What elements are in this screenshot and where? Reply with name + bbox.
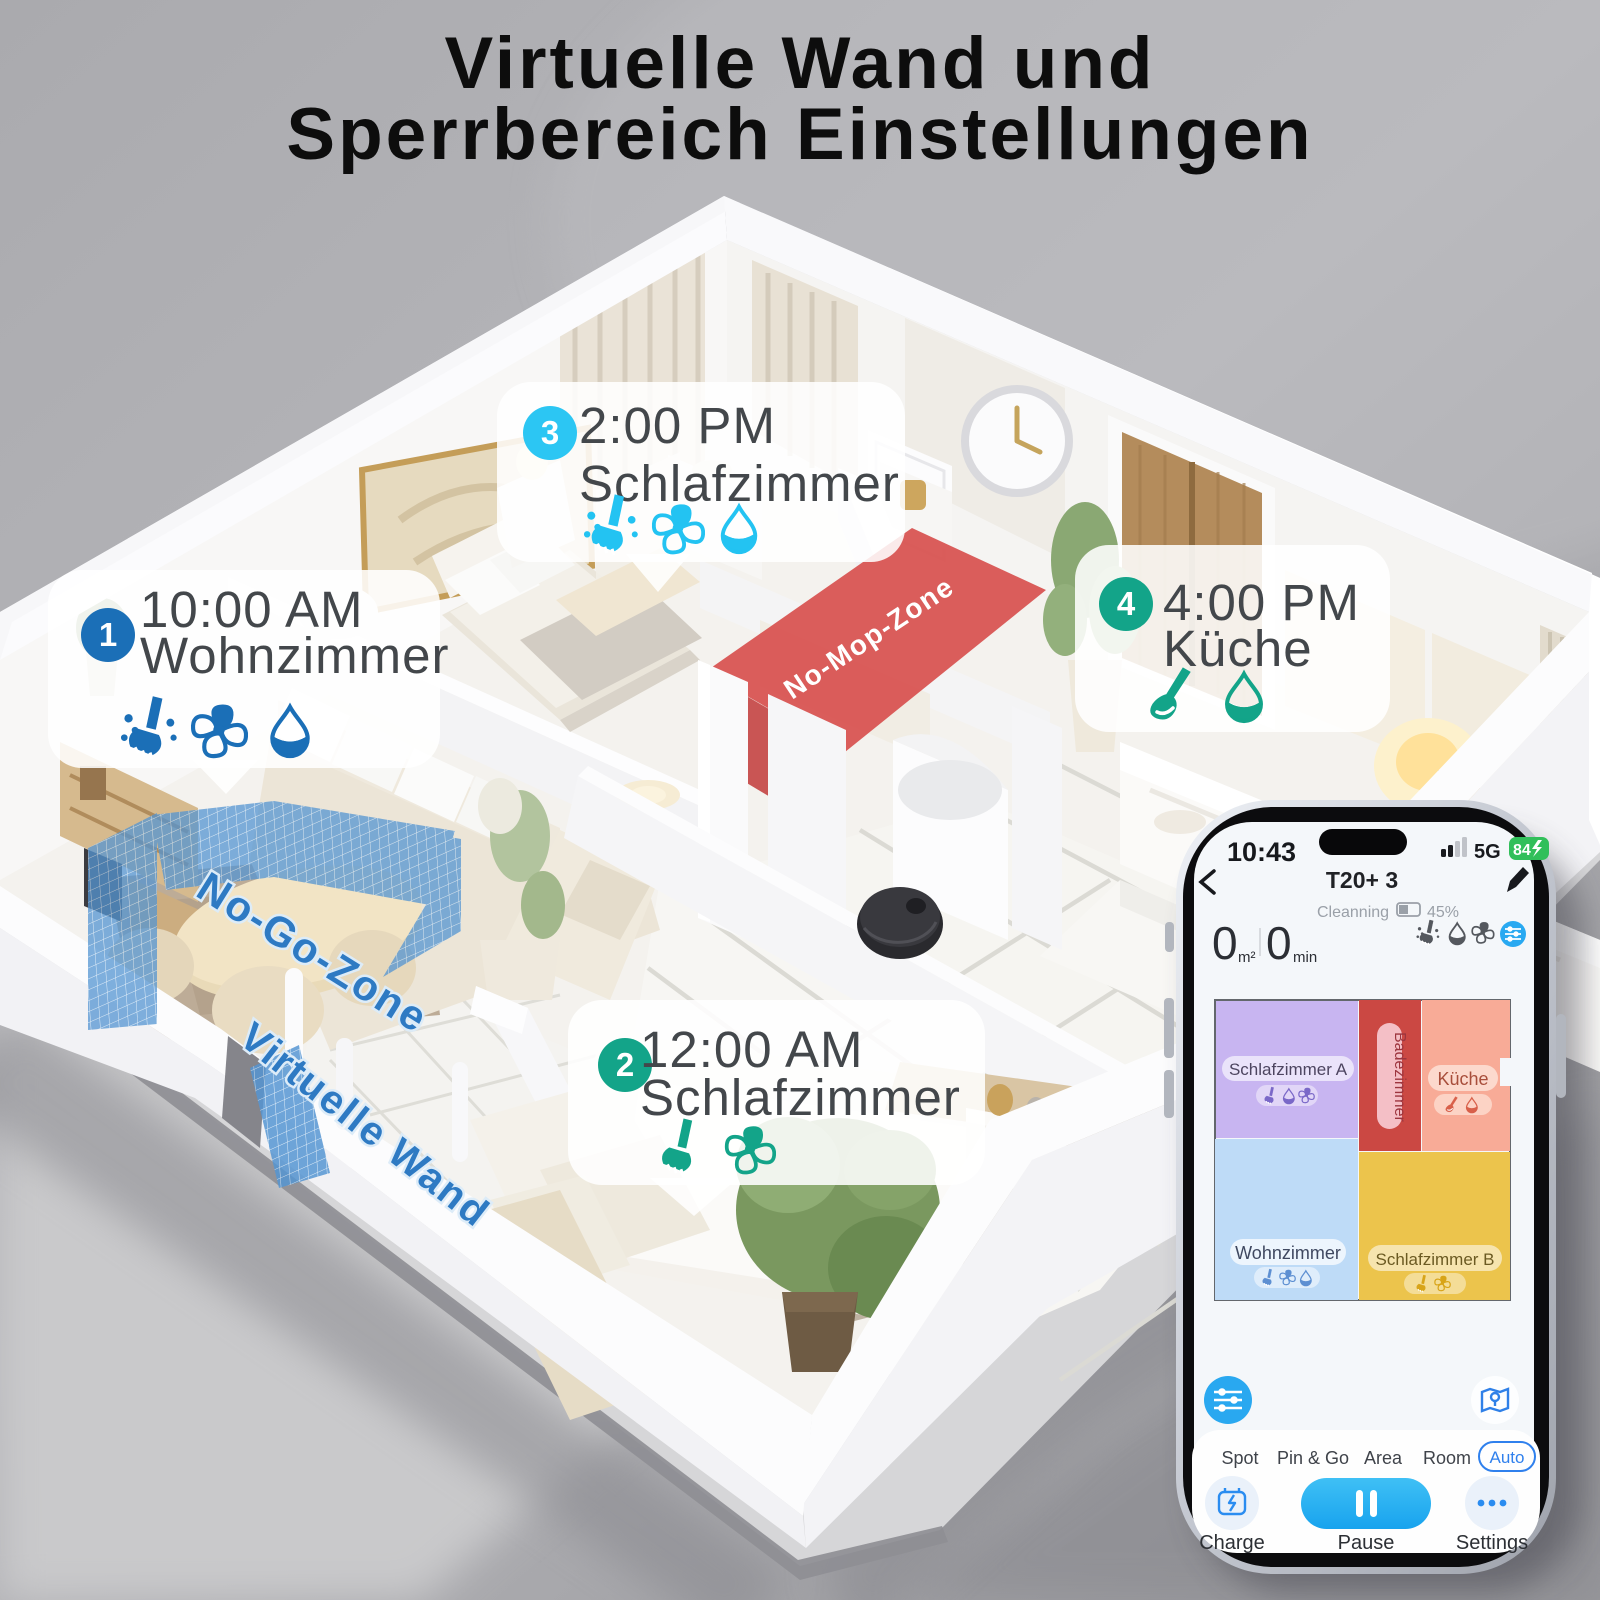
svg-text:Badezimmer: Badezimmer — [1391, 1032, 1408, 1122]
svg-text:Schlafzimmer B: Schlafzimmer B — [1375, 1250, 1494, 1269]
svg-text:Schlafzimmer A: Schlafzimmer A — [1229, 1060, 1348, 1079]
svg-text:Room: Room — [1423, 1448, 1471, 1468]
svg-text:Area: Area — [1364, 1448, 1403, 1468]
svg-text:0: 0 — [1212, 917, 1238, 969]
svg-text:Settings: Settings — [1456, 1532, 1528, 1554]
svg-text:Charge: Charge — [1199, 1532, 1265, 1554]
svg-text:Pause: Pause — [1338, 1532, 1395, 1554]
svg-text:Cleanning: Cleanning — [1317, 904, 1389, 921]
svg-text:5G: 5G — [1474, 841, 1501, 863]
svg-text:Auto: Auto — [1490, 1448, 1525, 1467]
svg-text:Wohnzimmer: Wohnzimmer — [1235, 1243, 1341, 1263]
svg-text:84: 84 — [1513, 842, 1531, 859]
svg-text:T20+ 3: T20+ 3 — [1326, 867, 1398, 893]
svg-text:10:43: 10:43 — [1227, 837, 1296, 867]
svg-text:Pin & Go: Pin & Go — [1277, 1448, 1349, 1468]
svg-text:0: 0 — [1266, 917, 1292, 969]
svg-text:m²: m² — [1238, 949, 1256, 966]
svg-text:min: min — [1293, 949, 1317, 966]
svg-text:Küche: Küche — [1437, 1069, 1488, 1089]
svg-text:Spot: Spot — [1221, 1448, 1258, 1468]
svg-text:45%: 45% — [1427, 904, 1459, 921]
